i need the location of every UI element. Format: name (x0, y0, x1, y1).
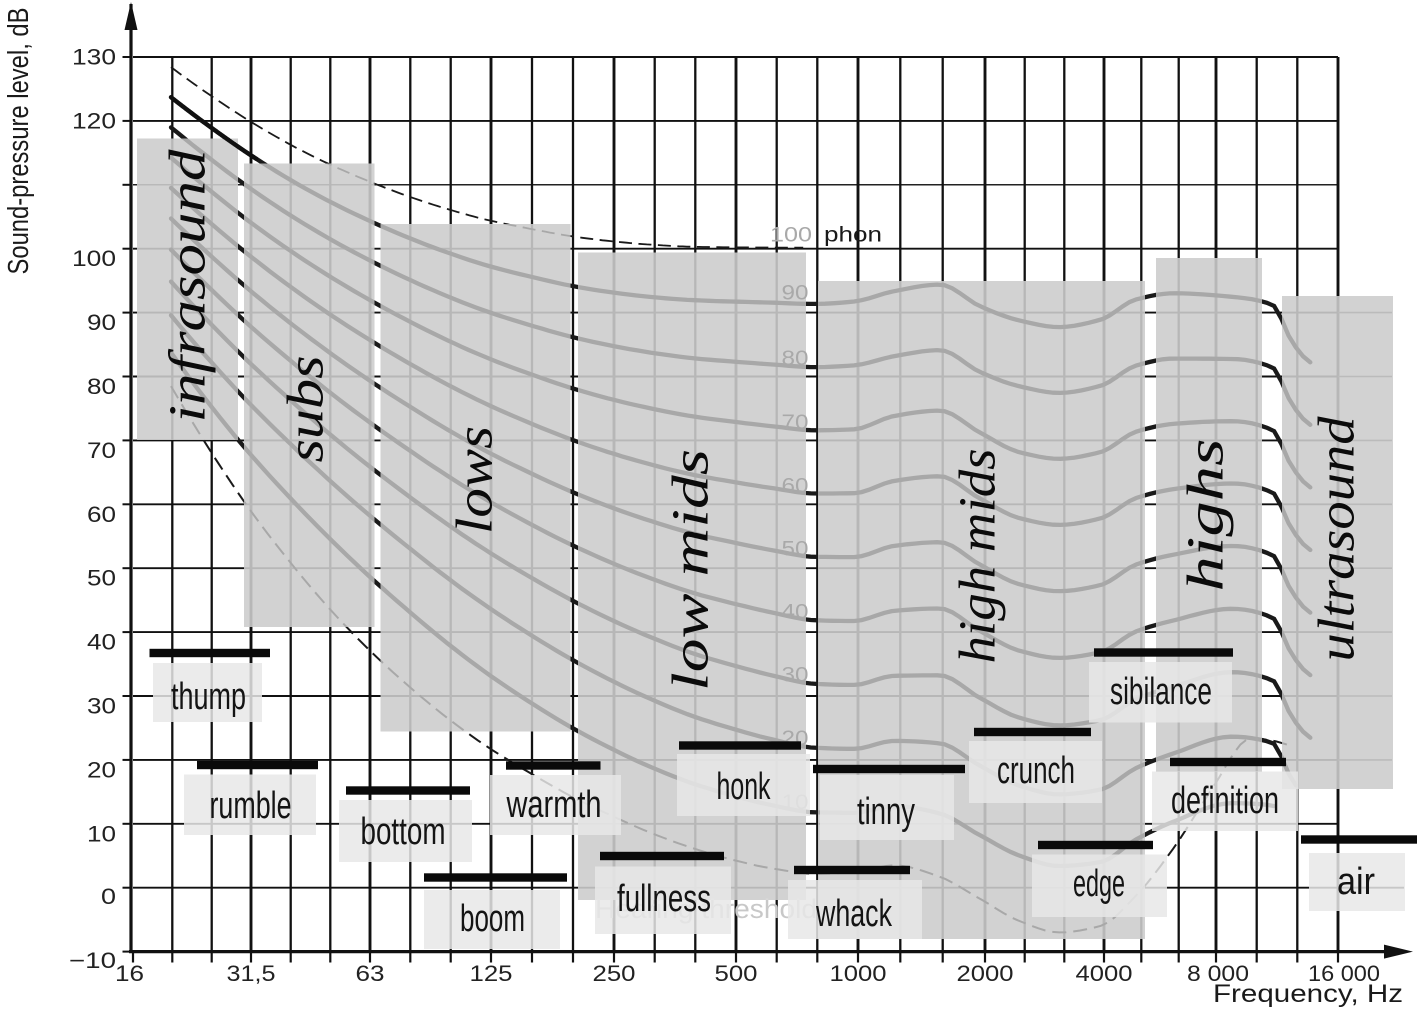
svg-text:120: 120 (72, 109, 116, 134)
svg-text:4000: 4000 (1076, 961, 1133, 986)
svg-text:40: 40 (782, 599, 809, 623)
svg-text:80: 80 (782, 346, 809, 370)
svg-text:20: 20 (87, 757, 116, 782)
svg-text:crunch: crunch (997, 750, 1075, 792)
svg-text:Sound-pressure level, dB: Sound-pressure level, dB (3, 8, 35, 275)
svg-text:phon: phon (824, 223, 882, 247)
svg-text:bottom: bottom (361, 811, 446, 853)
svg-text:250: 250 (593, 961, 636, 986)
svg-text:10: 10 (87, 821, 116, 846)
svg-text:60: 60 (87, 502, 116, 527)
svg-text:60: 60 (782, 474, 809, 498)
svg-text:70: 70 (87, 438, 116, 463)
svg-text:90: 90 (782, 281, 809, 305)
svg-text:high mids: high mids (950, 449, 1007, 664)
svg-text:1000: 1000 (830, 961, 887, 986)
svg-text:low mids: low mids (663, 449, 720, 691)
svg-text:500: 500 (715, 961, 758, 986)
svg-text:ultrasound: ultrasound (1309, 415, 1366, 661)
svg-text:30: 30 (87, 694, 116, 719)
svg-text:16: 16 (115, 961, 144, 986)
svg-text:rumble: rumble (210, 785, 292, 827)
svg-text:warmth: warmth (506, 784, 602, 826)
svg-text:50: 50 (87, 566, 116, 591)
svg-text:2000: 2000 (957, 961, 1014, 986)
svg-text:highs: highs (1178, 439, 1235, 592)
svg-text:31,5: 31,5 (227, 961, 276, 986)
svg-text:0: 0 (101, 884, 116, 909)
svg-text:50: 50 (782, 537, 809, 561)
svg-text:125: 125 (470, 961, 513, 986)
svg-text:fullness: fullness (617, 878, 711, 920)
svg-text:lows: lows (447, 426, 504, 534)
svg-text:edge: edge (1073, 863, 1125, 905)
svg-text:honk: honk (717, 766, 772, 808)
svg-text:air: air (1337, 861, 1375, 903)
svg-text:subs: subs (278, 356, 335, 463)
svg-text:90: 90 (87, 310, 116, 335)
svg-text:100: 100 (72, 246, 116, 271)
svg-text:tinny: tinny (857, 791, 915, 833)
svg-text:100: 100 (770, 223, 812, 247)
svg-text:30: 30 (782, 663, 809, 687)
svg-text:−10: −10 (69, 948, 116, 973)
svg-text:40: 40 (87, 630, 116, 655)
svg-text:Frequency, Hz: Frequency, Hz (1213, 980, 1403, 1008)
svg-text:80: 80 (87, 374, 116, 399)
svg-text:definition: definition (1171, 780, 1279, 822)
svg-text:thump: thump (171, 676, 246, 718)
svg-text:boom: boom (460, 898, 525, 940)
svg-text:sibilance: sibilance (1110, 671, 1212, 713)
svg-text:70: 70 (782, 410, 809, 434)
svg-text:infrasound: infrasound (160, 148, 217, 422)
svg-text:130: 130 (72, 45, 116, 70)
svg-text:63: 63 (356, 961, 385, 986)
svg-text:whack: whack (815, 893, 892, 935)
